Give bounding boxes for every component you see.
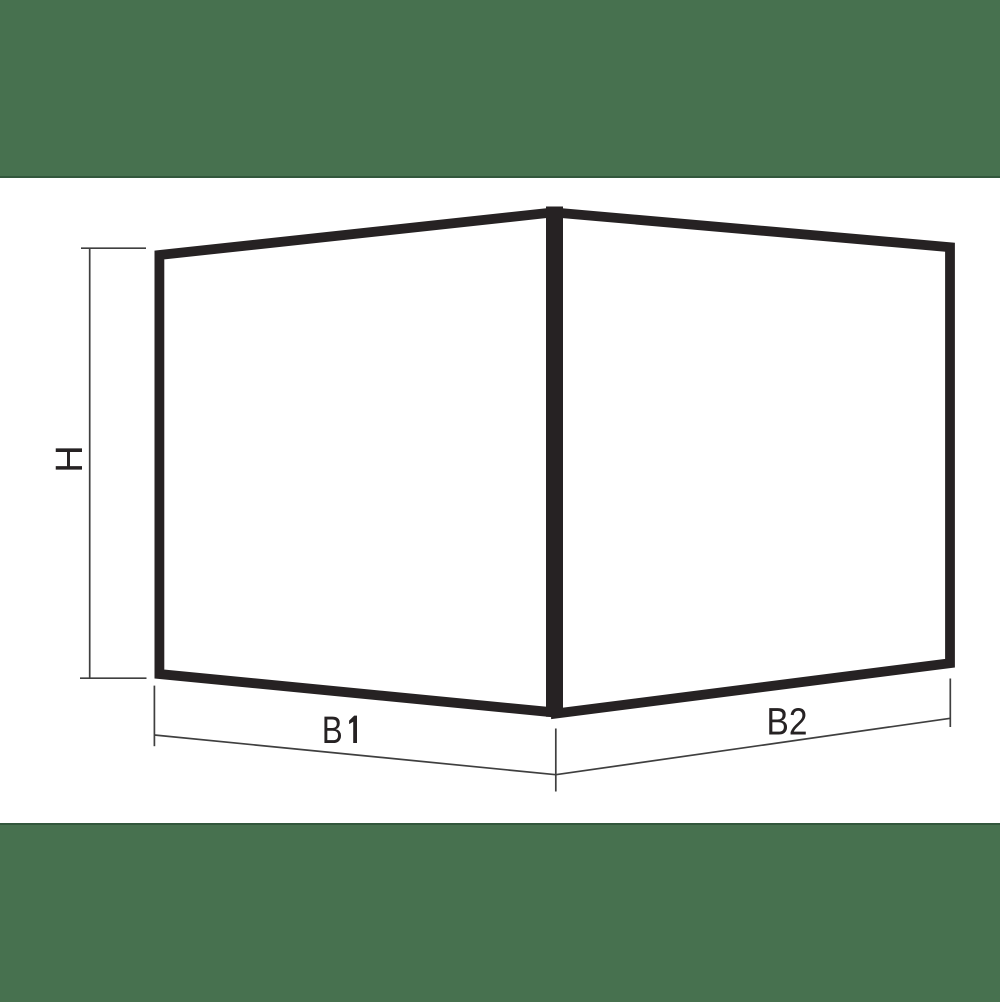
svg-text:H: H [49,445,91,472]
svg-text:B2: B2 [767,701,808,743]
svg-text:B: B [322,710,343,752]
